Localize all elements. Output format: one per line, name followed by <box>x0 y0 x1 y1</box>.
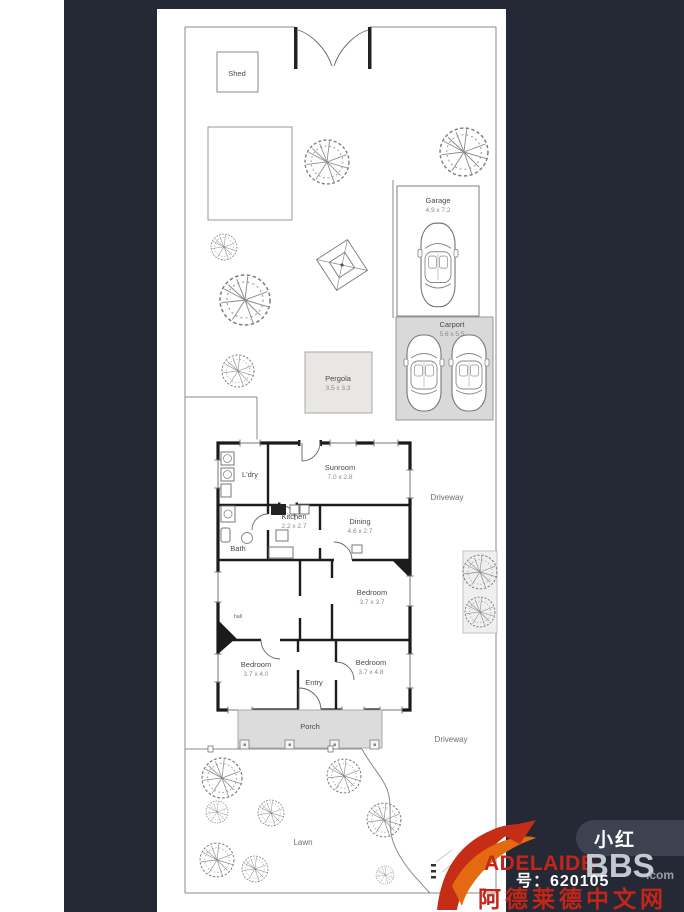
porch-label: Porch <box>300 722 320 731</box>
brand-chinese-text: 阿德莱德中文网 <box>478 886 667 912</box>
shed: Shed <box>217 52 258 92</box>
garage-label: Garage <box>425 196 450 205</box>
pergola-label: Pergola <box>325 374 352 383</box>
bedroom-front-left-dims: 3.7 x 4.0 <box>244 671 269 678</box>
bedroom-mid-dims: 3.7 x 3.7 <box>360 599 385 606</box>
bedroom-front-left-label: Bedroom <box>241 660 271 669</box>
brand-tld-text: .com <box>646 868 674 882</box>
laundry-label: L'dry <box>242 470 258 479</box>
kitchen-dims: 2.2 x 2.7 <box>282 523 307 530</box>
floor-plan-image: Shed Garage 4.9 x 7.2 Carport 5.6 x 5.5 … <box>0 0 684 912</box>
car-icon <box>404 335 444 411</box>
kitchen-label: Kitchen <box>281 512 306 521</box>
bath-label: Bath <box>230 544 245 553</box>
dining-heater <box>352 545 362 553</box>
pergola-dims: 3.5 x 3.3 <box>326 385 351 392</box>
carport-label: Carport <box>439 320 465 329</box>
bedroom-front-right-label: Bedroom <box>356 658 386 667</box>
pergola: Pergola 3.5 x 3.3 <box>305 352 372 413</box>
car-icon <box>449 335 489 411</box>
bedroom-front-right-dims: 3.7 x 4.8 <box>359 669 384 676</box>
sunroom-dims: 7.0 x 2.8 <box>328 474 353 481</box>
hall-label: hall <box>234 614 243 620</box>
porch: Porch <box>238 710 382 749</box>
plan-sheet <box>157 9 506 912</box>
dining-label: Dining <box>349 517 370 526</box>
brand-name-text: ADELAIDE <box>484 852 595 875</box>
driveway-front-label: Driveway <box>435 735 468 744</box>
screenshot-root: Shed Garage 4.9 x 7.2 Carport 5.6 x 5.5 … <box>0 0 684 912</box>
bedroom-mid-label: Bedroom <box>357 588 387 597</box>
garage-dims: 4.9 x 7.2 <box>426 207 451 214</box>
dining-dims: 4.6 x 2.7 <box>348 528 373 535</box>
entry-label: Entry <box>305 678 323 687</box>
garage: Garage 4.9 x 7.2 <box>397 186 479 316</box>
shed-label: Shed <box>228 69 246 78</box>
sunroom-label: Sunroom <box>325 463 355 472</box>
carport: Carport 5.6 x 5.5 <box>396 317 493 420</box>
car-icon <box>418 223 458 307</box>
driveway-side-label: Driveway <box>431 493 464 502</box>
lawn-label: Lawn <box>293 838 312 847</box>
